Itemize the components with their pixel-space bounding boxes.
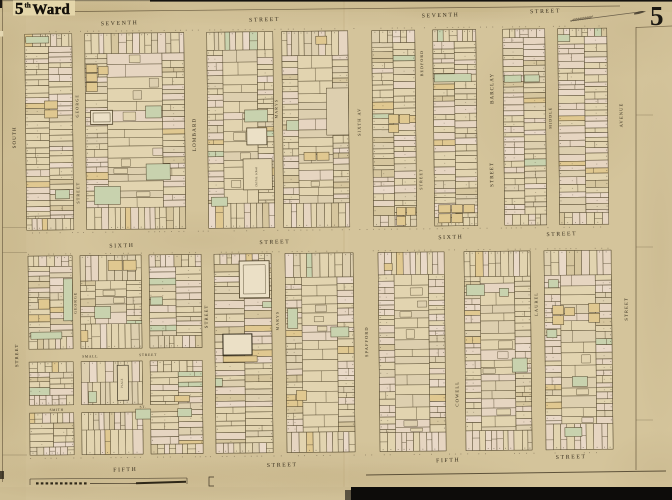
svg-text:th: th (25, 2, 31, 10)
svg-text:STREET: STREET (418, 168, 423, 189)
svg-text:STREET: STREET (530, 8, 561, 15)
svg-text:STREET: STREET (490, 162, 495, 187)
svg-text:STREET: STREET (624, 297, 629, 321)
svg-text:STREET: STREET (556, 454, 587, 461)
svg-text:BEDFORD: BEDFORD (419, 50, 424, 76)
svg-text:Old Pub. School: Old Pub. School (254, 167, 258, 187)
svg-text:STREET: STREET (546, 231, 577, 238)
svg-text:SPAFFORD: SPAFFORD (364, 326, 369, 357)
svg-text:LAUREL: LAUREL (533, 292, 538, 316)
svg-text:COWELL: COWELL (454, 381, 459, 407)
svg-text:MARYS: MARYS (273, 99, 278, 119)
svg-text:FIFTH: FIFTH (436, 457, 460, 464)
svg-text:MIDDLE: MIDDLE (548, 107, 553, 129)
svg-text:STREET: STREET (267, 462, 298, 469)
svg-text:STREET: STREET (139, 353, 157, 357)
svg-text:5: 5 (650, 1, 664, 31)
svg-text:SMITH: SMITH (50, 408, 64, 412)
svg-text:SEVENTH: SEVENTH (101, 20, 139, 27)
svg-text:STREET: STREET (259, 239, 290, 246)
svg-text:5: 5 (15, 0, 24, 18)
svg-text:AVENUE: AVENUE (618, 103, 623, 128)
svg-text:STREET: STREET (14, 344, 19, 368)
svg-text:FIFTH: FIFTH (113, 467, 137, 474)
svg-text:STREET: STREET (75, 182, 80, 204)
svg-text:STREET: STREET (204, 305, 209, 329)
svg-text:SMALL: SMALL (82, 354, 98, 358)
svg-text:SOUTH: SOUTH (13, 126, 18, 148)
svg-text:SIXTH: SIXTH (109, 243, 134, 250)
svg-text:GEORGE: GEORGE (73, 292, 77, 314)
svg-text:BARCLAY: BARCLAY (490, 73, 495, 104)
svg-text:SIXTH AV: SIXTH AV (357, 108, 362, 136)
svg-text:ST.: ST. (140, 405, 147, 409)
svg-text:LOMBARD: LOMBARD (192, 118, 198, 152)
svg-text:SEVENTH: SEVENTH (422, 12, 460, 19)
svg-text:PLACE: PLACE (120, 378, 124, 388)
svg-text:GEORGE: GEORGE (74, 94, 79, 118)
svg-text:SIXTH: SIXTH (438, 234, 463, 241)
svg-text:STREET: STREET (249, 17, 280, 24)
svg-text:Ward: Ward (33, 2, 71, 18)
svg-text:MARYS: MARYS (275, 311, 280, 331)
